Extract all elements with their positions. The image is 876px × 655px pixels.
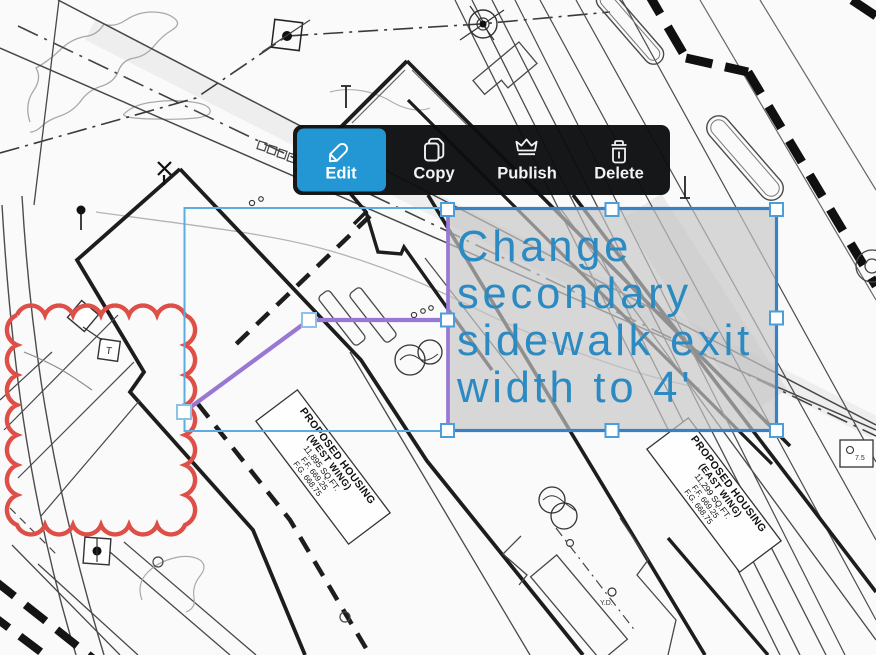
svg-text:secondary: secondary	[457, 270, 692, 318]
svg-text:Publish: Publish	[497, 165, 557, 183]
svg-text:Change: Change	[457, 223, 632, 271]
svg-text:7.5: 7.5	[855, 455, 865, 462]
svg-text:Copy: Copy	[413, 165, 455, 183]
svg-text:Edit: Edit	[325, 165, 357, 183]
svg-text:Y.D.: Y.D.	[600, 600, 613, 607]
svg-text:sidewalk exit: sidewalk exit	[457, 317, 753, 365]
svg-text:width to 4': width to 4'	[456, 364, 693, 412]
svg-text:Delete: Delete	[594, 165, 644, 183]
